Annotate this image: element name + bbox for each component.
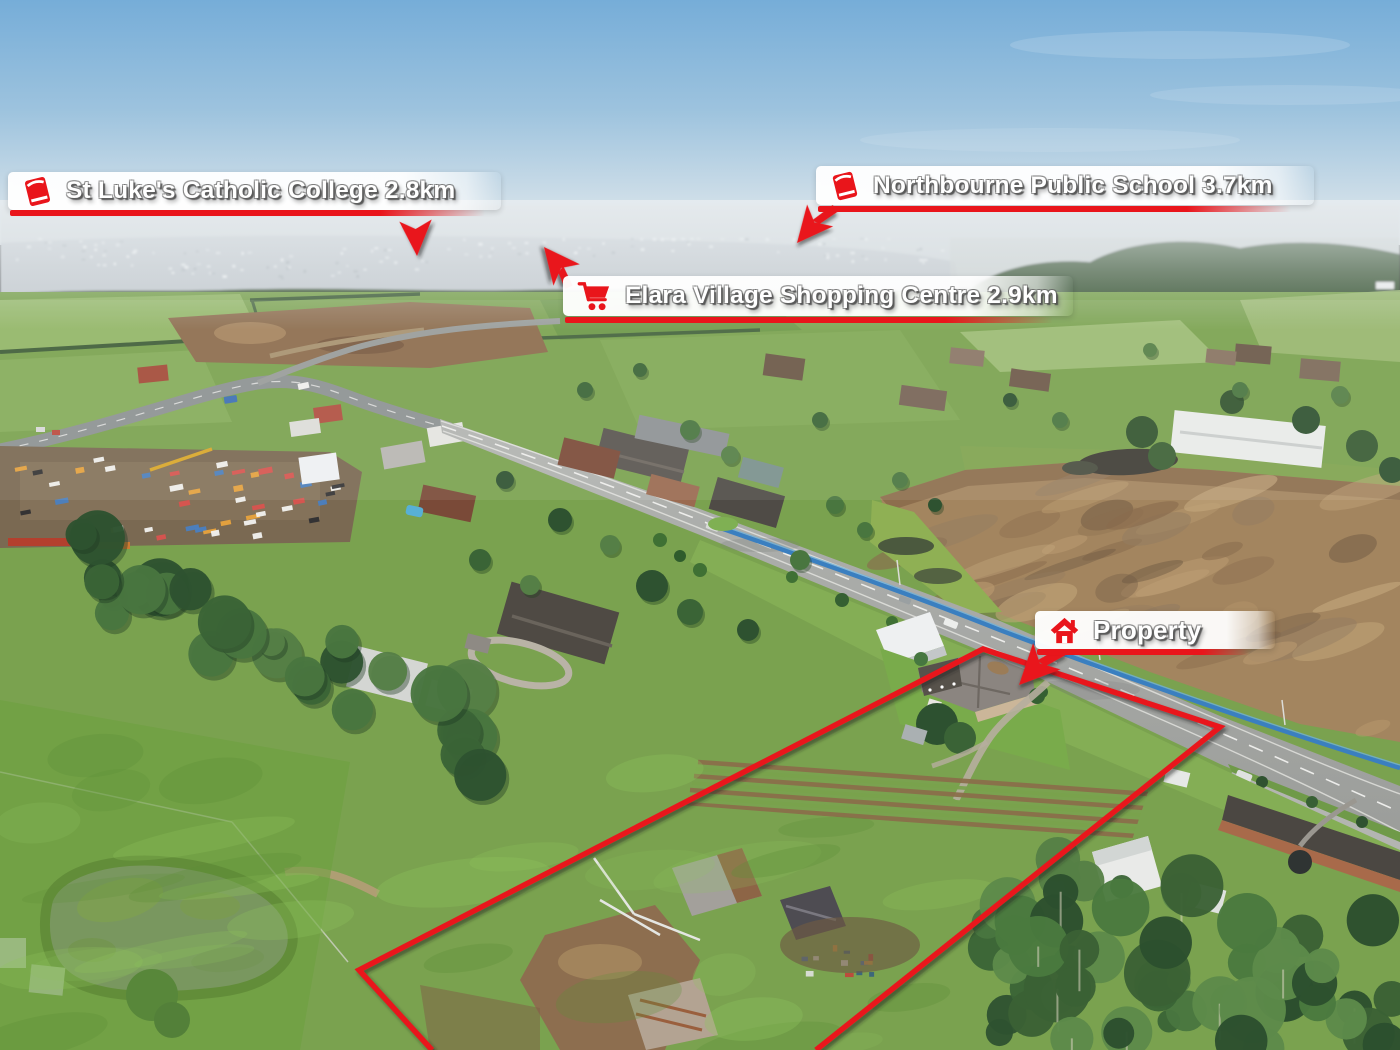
aerial-photo: St Luke's Catholic College 2.8km Northbo… bbox=[0, 0, 1400, 1050]
callout-label: St Luke's Catholic College 2.8km bbox=[66, 177, 455, 205]
callout-label: Northbourne Public School 3.7km bbox=[873, 172, 1273, 200]
callout-underline bbox=[1037, 649, 1249, 655]
callout-st-lukes-college: St Luke's Catholic College 2.8km bbox=[8, 172, 501, 210]
callout-property: Property bbox=[1035, 611, 1275, 649]
callout-elara-shopping-centre: Elara Village Shopping Centre 2.9km bbox=[563, 276, 1073, 316]
callout-plate: Property bbox=[1035, 611, 1275, 649]
callout-underline bbox=[818, 206, 1291, 212]
haze-mid bbox=[0, 300, 1400, 500]
callout-label: Property bbox=[1093, 615, 1202, 646]
callout-plate: Elara Village Shopping Centre 2.9km bbox=[563, 276, 1073, 316]
callout-underline bbox=[565, 317, 1053, 323]
book-icon bbox=[829, 170, 861, 202]
callout-plate: St Luke's Catholic College 2.8km bbox=[8, 172, 501, 210]
shopping-cart-icon bbox=[576, 280, 613, 313]
aerial-photo-canvas bbox=[0, 0, 1400, 1050]
callout-northbourne-school: Northbourne Public School 3.7km bbox=[816, 166, 1314, 205]
callout-plate: Northbourne Public School 3.7km bbox=[816, 166, 1314, 205]
book-icon bbox=[21, 175, 54, 208]
callout-label: Elara Village Shopping Centre 2.9km bbox=[625, 282, 1058, 310]
house-icon bbox=[1048, 615, 1081, 646]
callout-underline bbox=[10, 210, 485, 216]
